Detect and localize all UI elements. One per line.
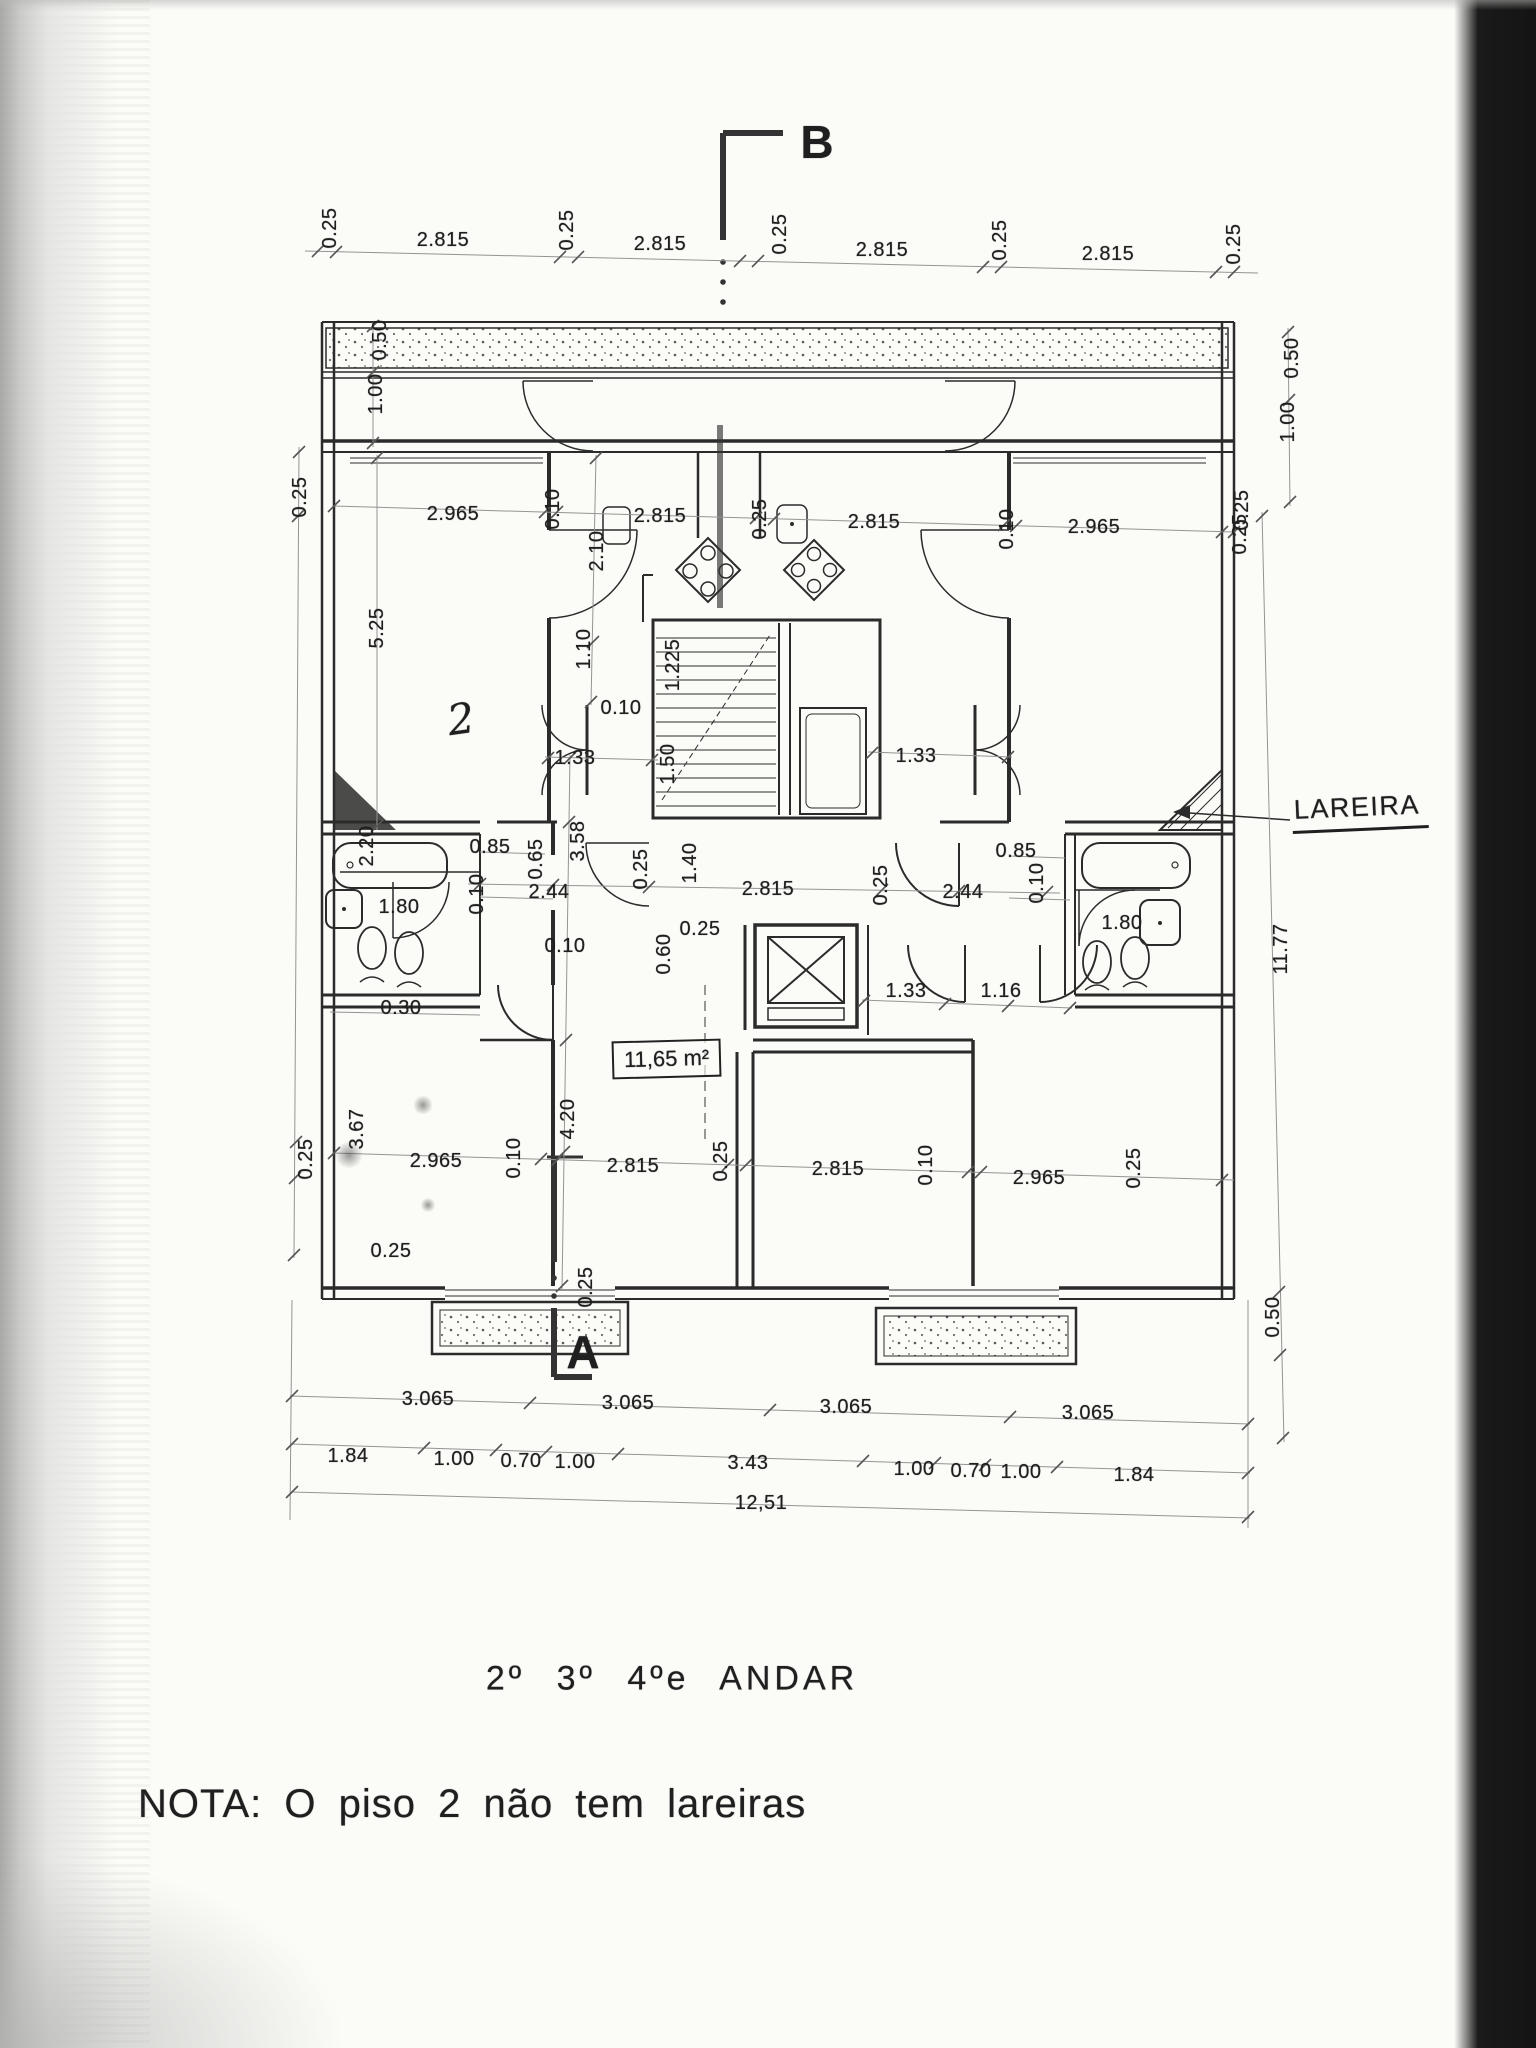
dim-label: 12,51 — [735, 1493, 788, 1513]
dim-label: 0.25 — [990, 220, 1010, 261]
dim-label: 3.065 — [820, 1397, 873, 1417]
fireplace-label: LAREIRA — [1291, 789, 1429, 834]
dim-label: 3.065 — [602, 1393, 655, 1413]
area-label: 11,65 m² — [612, 1039, 722, 1080]
dim-label: 1.33 — [555, 748, 596, 768]
dim-label: 2.815 — [634, 506, 687, 526]
toilet-left-1 — [358, 927, 386, 969]
elevator-shaft — [755, 925, 857, 1027]
dim-label: 3.43 — [728, 1453, 769, 1473]
door-swings — [393, 381, 1135, 1040]
dim-label: 0.10 — [1027, 863, 1047, 904]
dim-label: 0.85 — [996, 841, 1037, 861]
dim-label: 2.815 — [848, 512, 901, 532]
dim-label: 0.50 — [1282, 338, 1302, 379]
dim-label: 2.20 — [357, 826, 377, 867]
dim-label: 1.00 — [1001, 1462, 1042, 1482]
plan-title: 2º 3º 4ºe ANDAR — [486, 1660, 858, 1699]
dim-label: 2.815 — [742, 879, 795, 899]
bottom-balconies — [432, 1286, 1076, 1364]
dim-label: 0.25 — [711, 1141, 731, 1182]
dim-label: 0.70 — [951, 1461, 992, 1481]
plan-note: NOTA: O piso 2 não tem lareiras — [138, 1782, 806, 1827]
elevator-x-mark — [768, 937, 844, 1003]
dim-label: 0.25 — [770, 214, 790, 255]
dim-label: 11.77 — [1271, 923, 1291, 974]
dim-label: 3.58 — [568, 821, 588, 862]
dim-label: 1.40 — [680, 843, 700, 884]
dim-label: 0.30 — [381, 998, 422, 1018]
dim-label: 0.70 — [501, 1451, 542, 1471]
dim-label: 2.44 — [943, 882, 984, 902]
dim-label: 1.84 — [1114, 1465, 1155, 1485]
dim-label: 3.065 — [1062, 1403, 1115, 1423]
fireplace-arrow — [1175, 812, 1290, 820]
dim-label: 2.965 — [1068, 517, 1121, 537]
dim-label: 0.10 — [545, 936, 586, 956]
staircase — [653, 620, 880, 818]
dim-label: 0.10 — [504, 1138, 524, 1179]
stove-right — [784, 540, 844, 600]
dim-label: 0.25 — [296, 1139, 316, 1180]
dim-label: 1.00 — [1278, 402, 1298, 443]
top-balcony-hatch — [326, 328, 1228, 368]
dim-label: 1.00 — [555, 1452, 596, 1472]
dim-label: 0.25 — [557, 210, 577, 251]
dim-label: 5.25 — [367, 608, 387, 649]
dim-label: 0.25 — [1124, 1148, 1144, 1189]
dim-label: 0.60 — [654, 934, 674, 975]
dim-label: 0.85 — [470, 837, 511, 857]
dim-label: 2.965 — [1013, 1168, 1066, 1188]
dim-label: 0.10 — [543, 489, 563, 530]
bathtub-right — [1082, 843, 1190, 888]
dim-label: 0.50 — [1263, 1297, 1283, 1338]
dim-label: 2.815 — [812, 1159, 865, 1179]
dim-label: 3.065 — [402, 1389, 455, 1409]
dim-label: 2.815 — [856, 240, 909, 260]
dim-label: 0.50 — [370, 320, 390, 361]
dim-label: 0.10 — [601, 698, 642, 718]
dim-label: 1.84 — [328, 1446, 369, 1466]
dim-label: 2.815 — [1082, 244, 1135, 264]
dim-label: 0.25 — [631, 849, 651, 890]
dim-label: 2.965 — [427, 504, 480, 524]
dim-label: 0.25 — [680, 919, 721, 939]
dim-label: 1.10 — [574, 629, 594, 670]
dim-label: 2.965 — [410, 1151, 463, 1171]
section-label-b: B — [800, 115, 833, 169]
dim-label: 1.50 — [658, 744, 678, 785]
dim-label: 0.25 — [871, 865, 891, 906]
dim-label: 2.815 — [607, 1156, 660, 1176]
dim-label: 0.25 — [371, 1241, 412, 1261]
dim-label: 0.10 — [916, 1145, 936, 1186]
dim-label: 1.80 — [1102, 913, 1143, 933]
dim-label: 1.225 — [663, 639, 683, 692]
dim-label: 3.67 — [347, 1109, 367, 1150]
dim-label: 0.25 — [290, 477, 310, 518]
stove-left — [676, 538, 740, 602]
bathtub-left — [333, 843, 447, 888]
dim-label: 0.25 — [750, 499, 770, 540]
dim-label: 1.80 — [379, 897, 420, 917]
dim-label: 0.25 — [1230, 514, 1250, 555]
dim-label: 2.10 — [587, 531, 607, 572]
dim-label: 0.25 — [1224, 224, 1244, 265]
dim-label: 1.16 — [981, 981, 1022, 1001]
dim-label: 1.33 — [896, 746, 937, 766]
dim-label: 0.25 — [320, 208, 340, 249]
dim-label: 1.33 — [886, 981, 927, 1001]
dim-label: 1.00 — [366, 374, 386, 415]
dim-label: 0.65 — [526, 839, 546, 880]
floor-plan-drawing — [0, 0, 1536, 2048]
dim-label: 0.10 — [997, 509, 1017, 550]
dim-label: 2.815 — [634, 234, 687, 254]
scanned-floor-plan-page: 0.252.8150.252.8150.252.8150.252.8150.25… — [0, 0, 1536, 2048]
section-label-a: A — [566, 1325, 599, 1379]
dim-label: 0.25 — [576, 1267, 596, 1308]
dim-label: 2.815 — [417, 230, 470, 250]
dim-label: 1.00 — [894, 1459, 935, 1479]
dim-label: 2.44 — [529, 882, 570, 902]
dim-label: 4.20 — [558, 1099, 578, 1140]
toilet-right-2 — [1121, 937, 1149, 979]
dim-label: 0.10 — [467, 874, 487, 915]
dim-label: 1.00 — [434, 1449, 475, 1469]
